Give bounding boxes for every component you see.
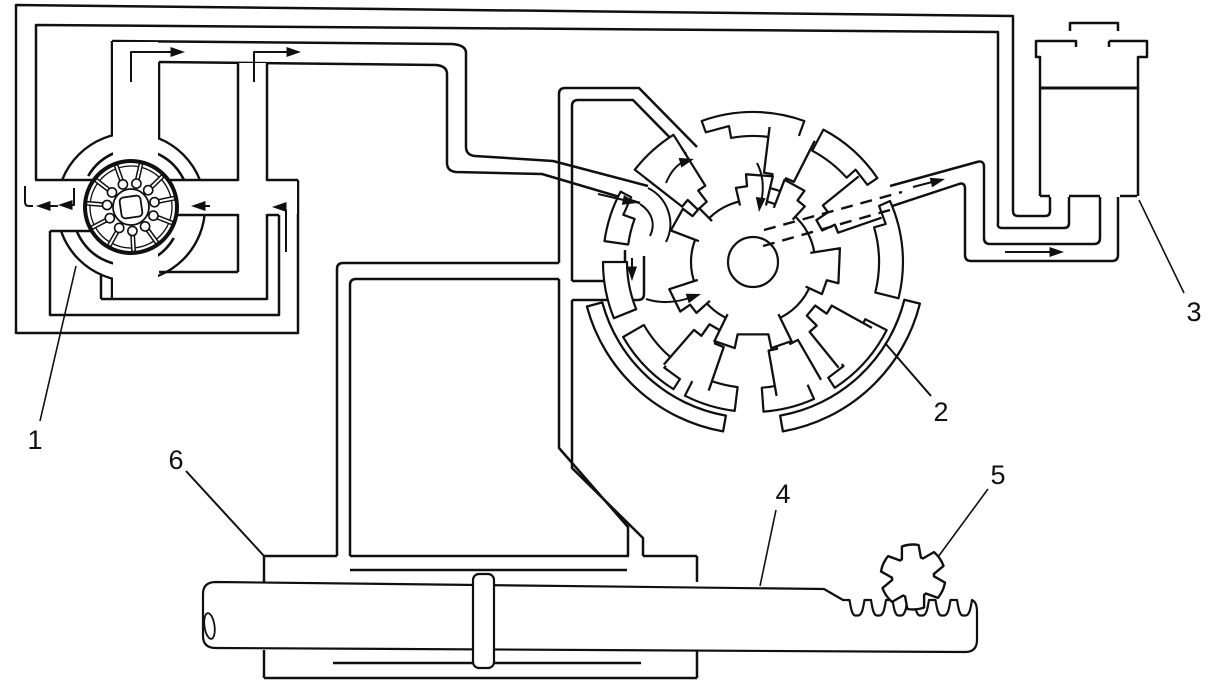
svg-text:2: 2	[933, 397, 948, 427]
svg-text:5: 5	[990, 460, 1005, 490]
svg-text:3: 3	[1186, 297, 1201, 327]
svg-text:1: 1	[27, 425, 42, 455]
svg-text:4: 4	[775, 479, 790, 509]
svg-text:6: 6	[168, 445, 183, 475]
